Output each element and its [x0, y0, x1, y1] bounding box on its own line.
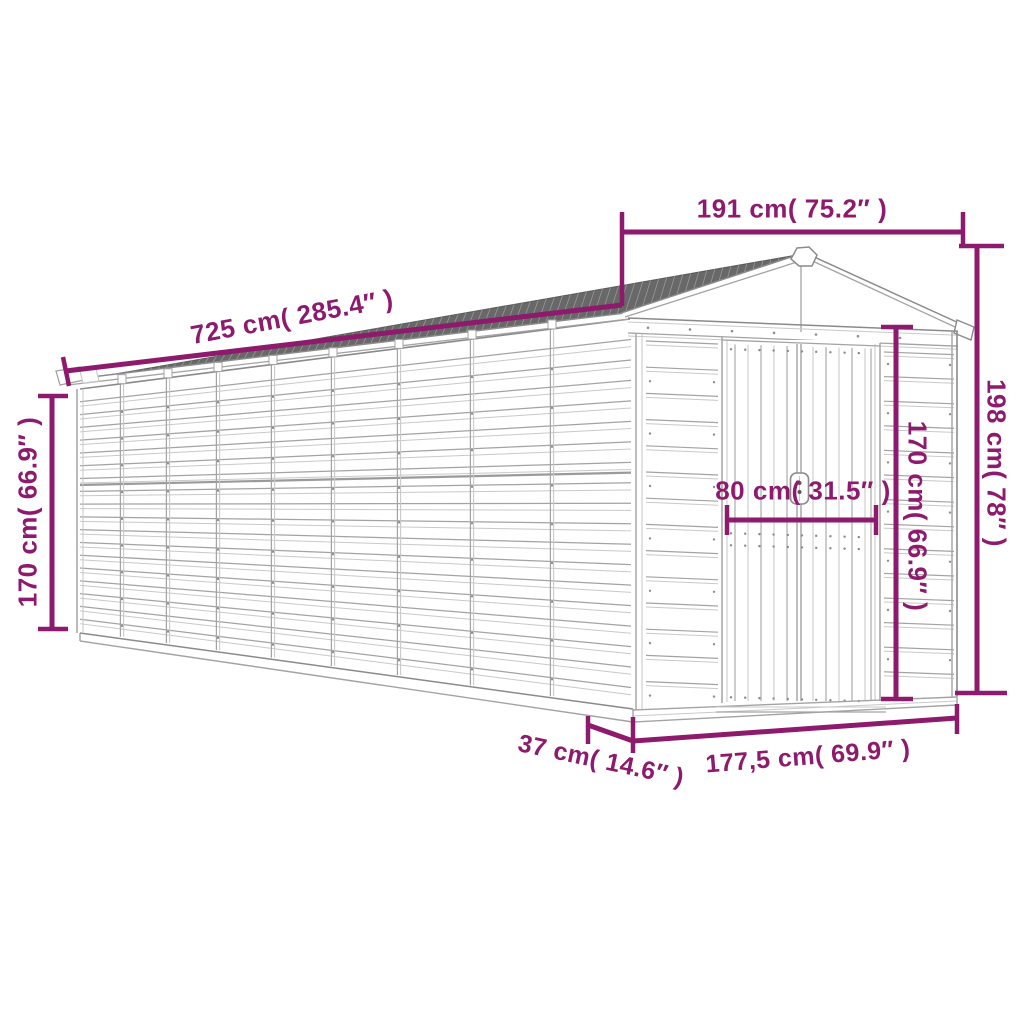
dim-label-right-height: 198 cm( 78″ ) [981, 379, 1012, 547]
shed-left-wall [77, 319, 633, 722]
dim-label-door-width: 80 cm( 31.5″ ) [715, 476, 891, 507]
dim-label-door-height: 170 cm( 66.9″ ) [902, 421, 933, 612]
shed-diagram-svg [0, 0, 1024, 1024]
dim-label-left-height: 170 cm( 66.9″ ) [13, 417, 44, 608]
product-dimension-image: 191 cm( 75.2″ ) 725 cm( 285.4″ ) 170 cm(… [0, 0, 1024, 1024]
dim-label-top-width: 191 cm( 75.2″ ) [697, 194, 888, 225]
